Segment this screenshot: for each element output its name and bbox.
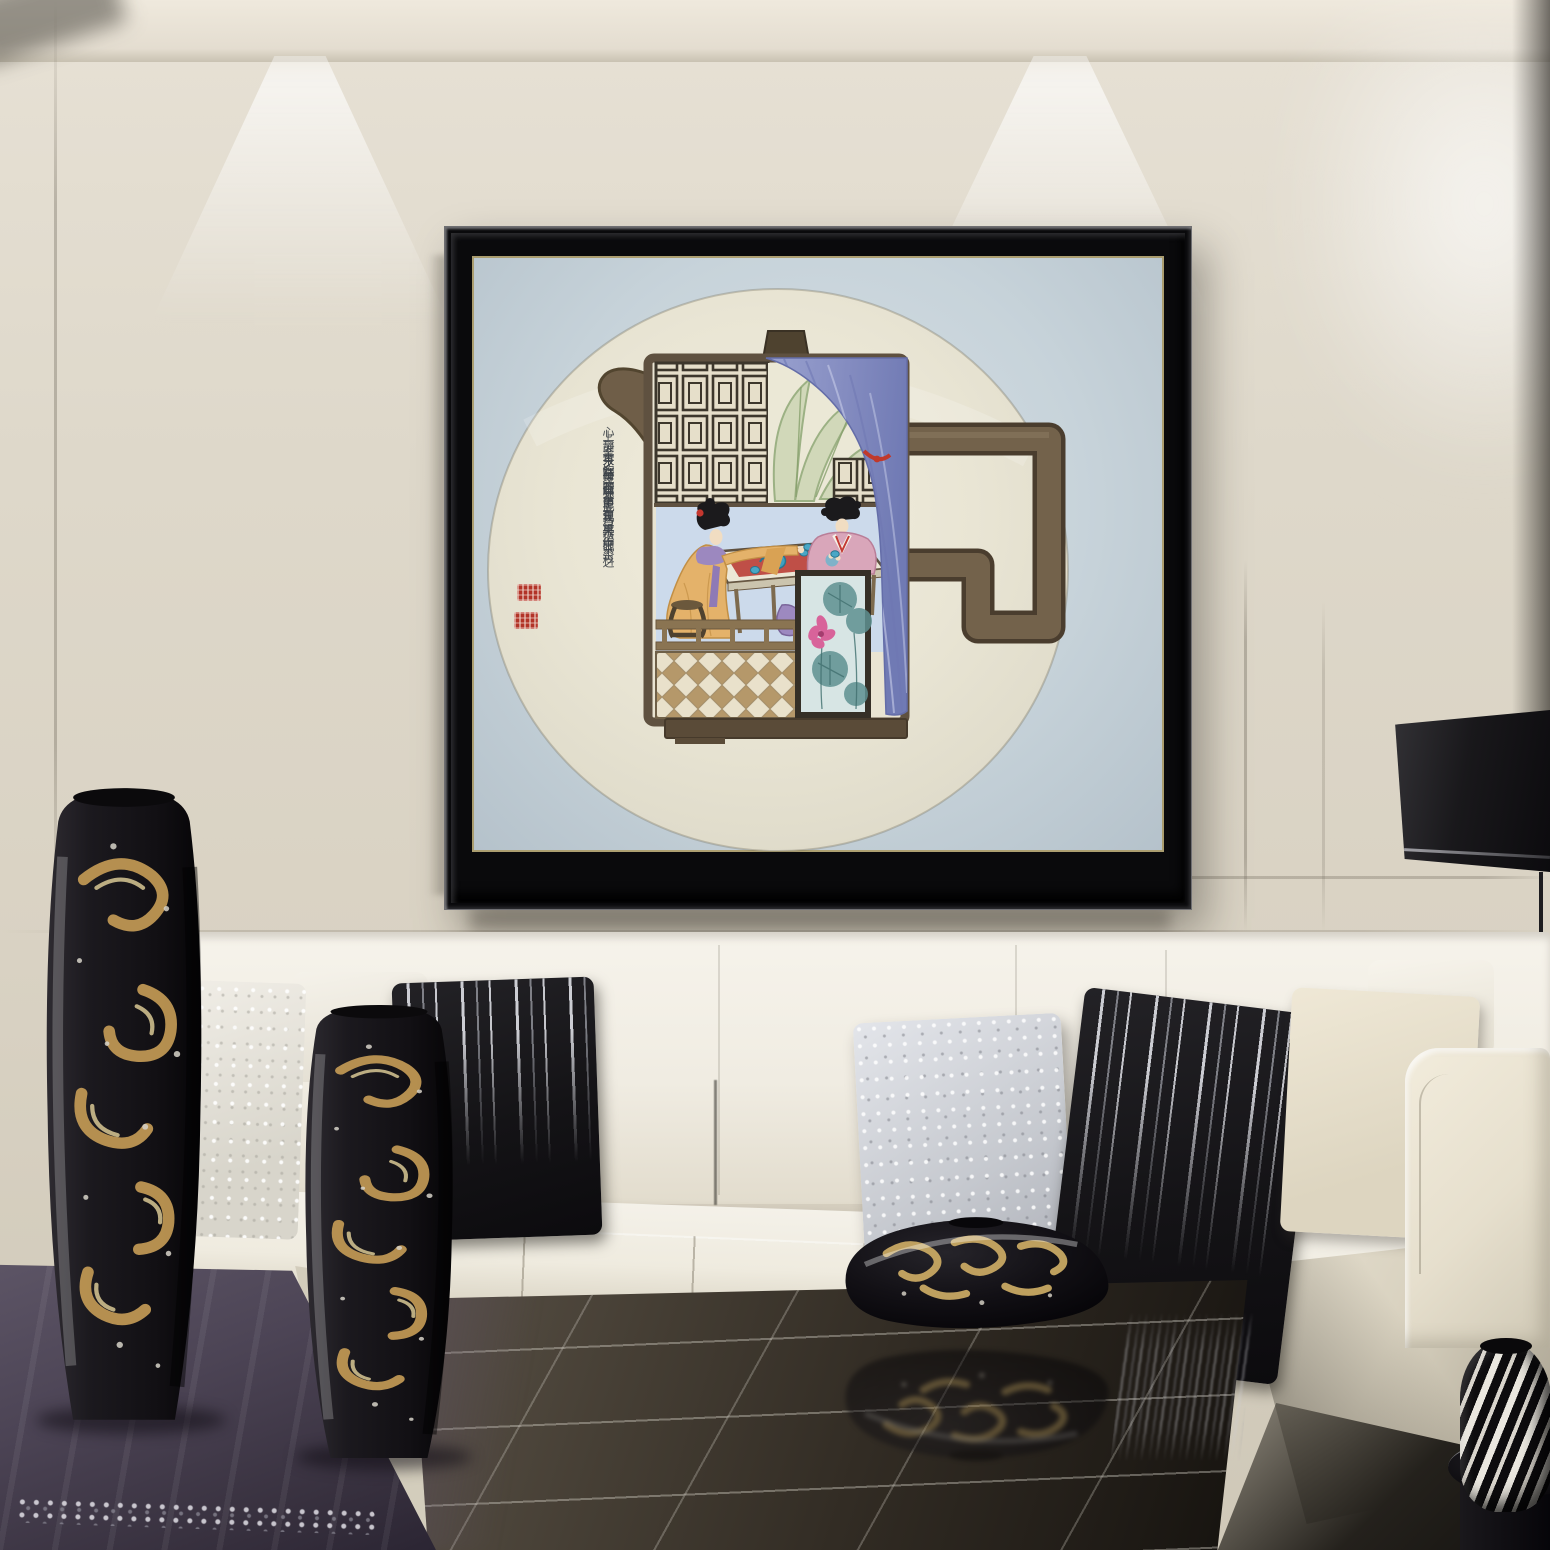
mosaic-vase-right [278, 1002, 480, 1464]
sofa-crease [714, 1080, 717, 1205]
pebble-vase-reflection [830, 1338, 1122, 1470]
calligraphy-inscription: 心靜茶至茶至灵来 灵来神往道现其中 善饮心茶者最得茶 之三味此乃饮茶之 上上之境… [499, 424, 615, 684]
wall-moulding-line [1322, 600, 1325, 932]
silver-fringe-reflection [1110, 1312, 1256, 1462]
wall-glow [1280, 20, 1550, 480]
zebra-pattern-vase [1460, 1340, 1550, 1512]
sofa-seam [718, 945, 720, 1195]
black-lamp-shade [1392, 710, 1550, 872]
tall-mosaic-vase-left [18, 784, 230, 1428]
artist-seal-icon [517, 584, 541, 601]
pebble-mosaic-vase [830, 1208, 1122, 1340]
frame-shadow [470, 908, 1170, 930]
sofa-armrest [1405, 1048, 1550, 1348]
calligraphy-signature: 砚科 [600, 540, 615, 568]
spotlight-wash-left [140, 56, 460, 346]
calligraphy-date-column: 時丙申年 [600, 468, 615, 524]
wall-corner-shadow [1512, 0, 1550, 720]
artist-seal-icon [514, 612, 538, 629]
living-room-photo: 心靜茶至茶至灵来 灵来神往道现其中 善饮心茶者最得茶 之三味此乃饮茶之 上上之境… [0, 0, 1550, 1550]
